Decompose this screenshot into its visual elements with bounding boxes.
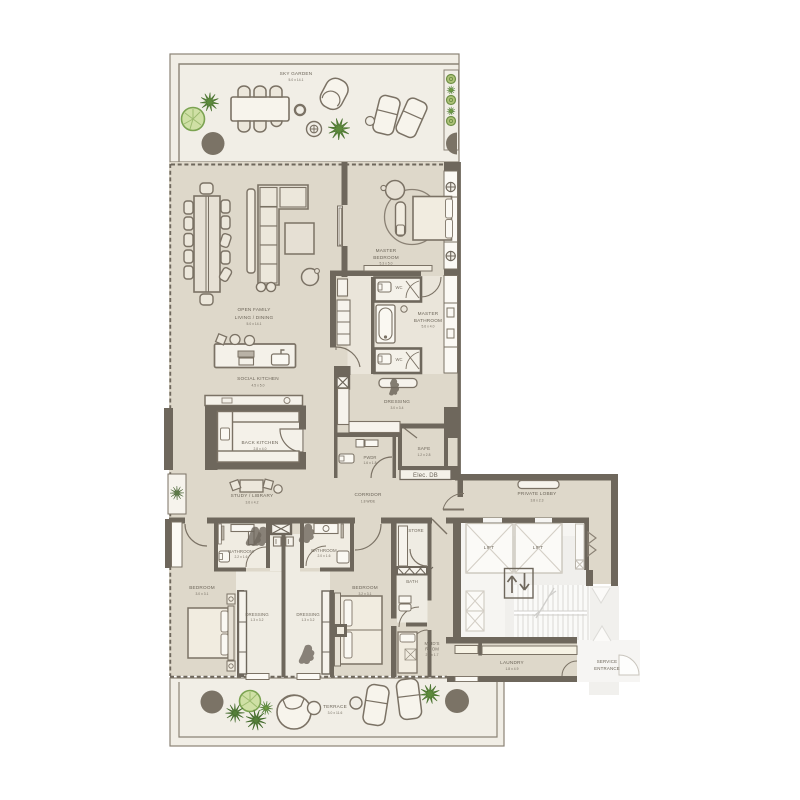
svg-text:Elec. DB: Elec. DB [413,473,438,479]
svg-text:LIFT: LIFT [484,545,494,550]
svg-text:5.3 x 5.0: 5.3 x 5.0 [379,262,392,266]
svg-text:PRIVATE LOBBY: PRIVATE LOBBY [518,491,558,496]
svg-text:SERVICE: SERVICE [597,659,618,664]
svg-text:MAID'S: MAID'S [424,641,439,646]
svg-text:OPEN FAMILY: OPEN FAMILY [237,307,271,312]
svg-text:1.6 x 1.8: 1.6 x 1.8 [363,461,376,465]
svg-text:1.2 x 2.8: 1.2 x 2.8 [417,453,430,457]
svg-text:WC: WC [395,285,402,290]
svg-text:BATHROOM: BATHROOM [311,548,337,553]
svg-text:1.8 WIDE: 1.8 WIDE [361,500,376,504]
svg-text:MASTER: MASTER [376,248,397,253]
svg-text:SOCIAL KITCHEN: SOCIAL KITCHEN [237,376,279,381]
svg-text:LIFT: LIFT [533,545,543,550]
svg-text:BATHROOM: BATHROOM [228,549,254,554]
svg-text:5.0 x 14.1: 5.0 x 14.1 [289,78,304,82]
svg-text:1.3 x 3.2: 1.3 x 3.2 [301,618,314,622]
svg-text:WC: WC [395,357,402,362]
svg-text:DRESSING: DRESSING [384,399,410,404]
svg-text:SAFE: SAFE [417,446,430,451]
svg-text:DRESSING: DRESSING [296,612,320,617]
svg-text:SKY GARDEN: SKY GARDEN [280,71,313,76]
svg-text:2.8 x 4.0: 2.8 x 4.0 [253,447,266,451]
svg-text:5.0 x 14.1: 5.0 x 14.1 [247,322,262,326]
svg-text:3.6 x 4.2: 3.6 x 4.2 [245,501,258,505]
svg-text:ROOM: ROOM [425,647,439,652]
svg-text:BEDROOM: BEDROOM [352,585,378,590]
svg-text:BEDROOM: BEDROOM [189,585,215,590]
svg-text:MASTER: MASTER [418,311,439,316]
svg-text:2.0 x 1.6: 2.0 x 1.6 [317,554,330,558]
svg-text:LIVING / DINING: LIVING / DINING [235,315,274,320]
svg-text:2.2 x 1.6: 2.2 x 1.6 [234,555,247,559]
svg-text:3.8 x 2.3: 3.8 x 2.3 [530,499,543,503]
svg-text:3.0 x 11.6: 3.0 x 11.6 [328,711,343,715]
svg-text:1.3 x 3.2: 1.3 x 3.2 [250,618,263,622]
svg-text:TERRACE: TERRACE [323,704,347,709]
svg-text:CORRIDOR: CORRIDOR [354,492,382,497]
svg-text:5.6 x 4.0: 5.6 x 4.0 [421,325,434,329]
svg-text:LAUNDRY: LAUNDRY [500,660,524,665]
svg-text:STORE: STORE [408,528,423,533]
svg-text:ENTRANCE: ENTRANCE [594,666,620,671]
svg-text:BATH: BATH [406,579,418,584]
svg-text:2.3 x 1.7: 2.3 x 1.7 [425,653,438,657]
svg-text:PWDR: PWDR [364,455,377,460]
svg-text:STUDY / LIBRARY: STUDY / LIBRARY [231,493,274,498]
svg-text:BEDROOM: BEDROOM [373,255,399,260]
svg-text:DRESSING: DRESSING [245,612,269,617]
svg-text:1.8 x 4.9: 1.8 x 4.9 [505,667,518,671]
svg-text:BACK KITCHEN: BACK KITCHEN [241,440,278,445]
svg-text:3.0 x 3.1: 3.0 x 3.1 [195,592,208,596]
svg-text:BATHROOM: BATHROOM [414,318,442,323]
svg-text:3.0 x 3.4: 3.0 x 3.4 [390,406,403,410]
svg-text:4.5 x 5.0: 4.5 x 5.0 [251,384,264,388]
